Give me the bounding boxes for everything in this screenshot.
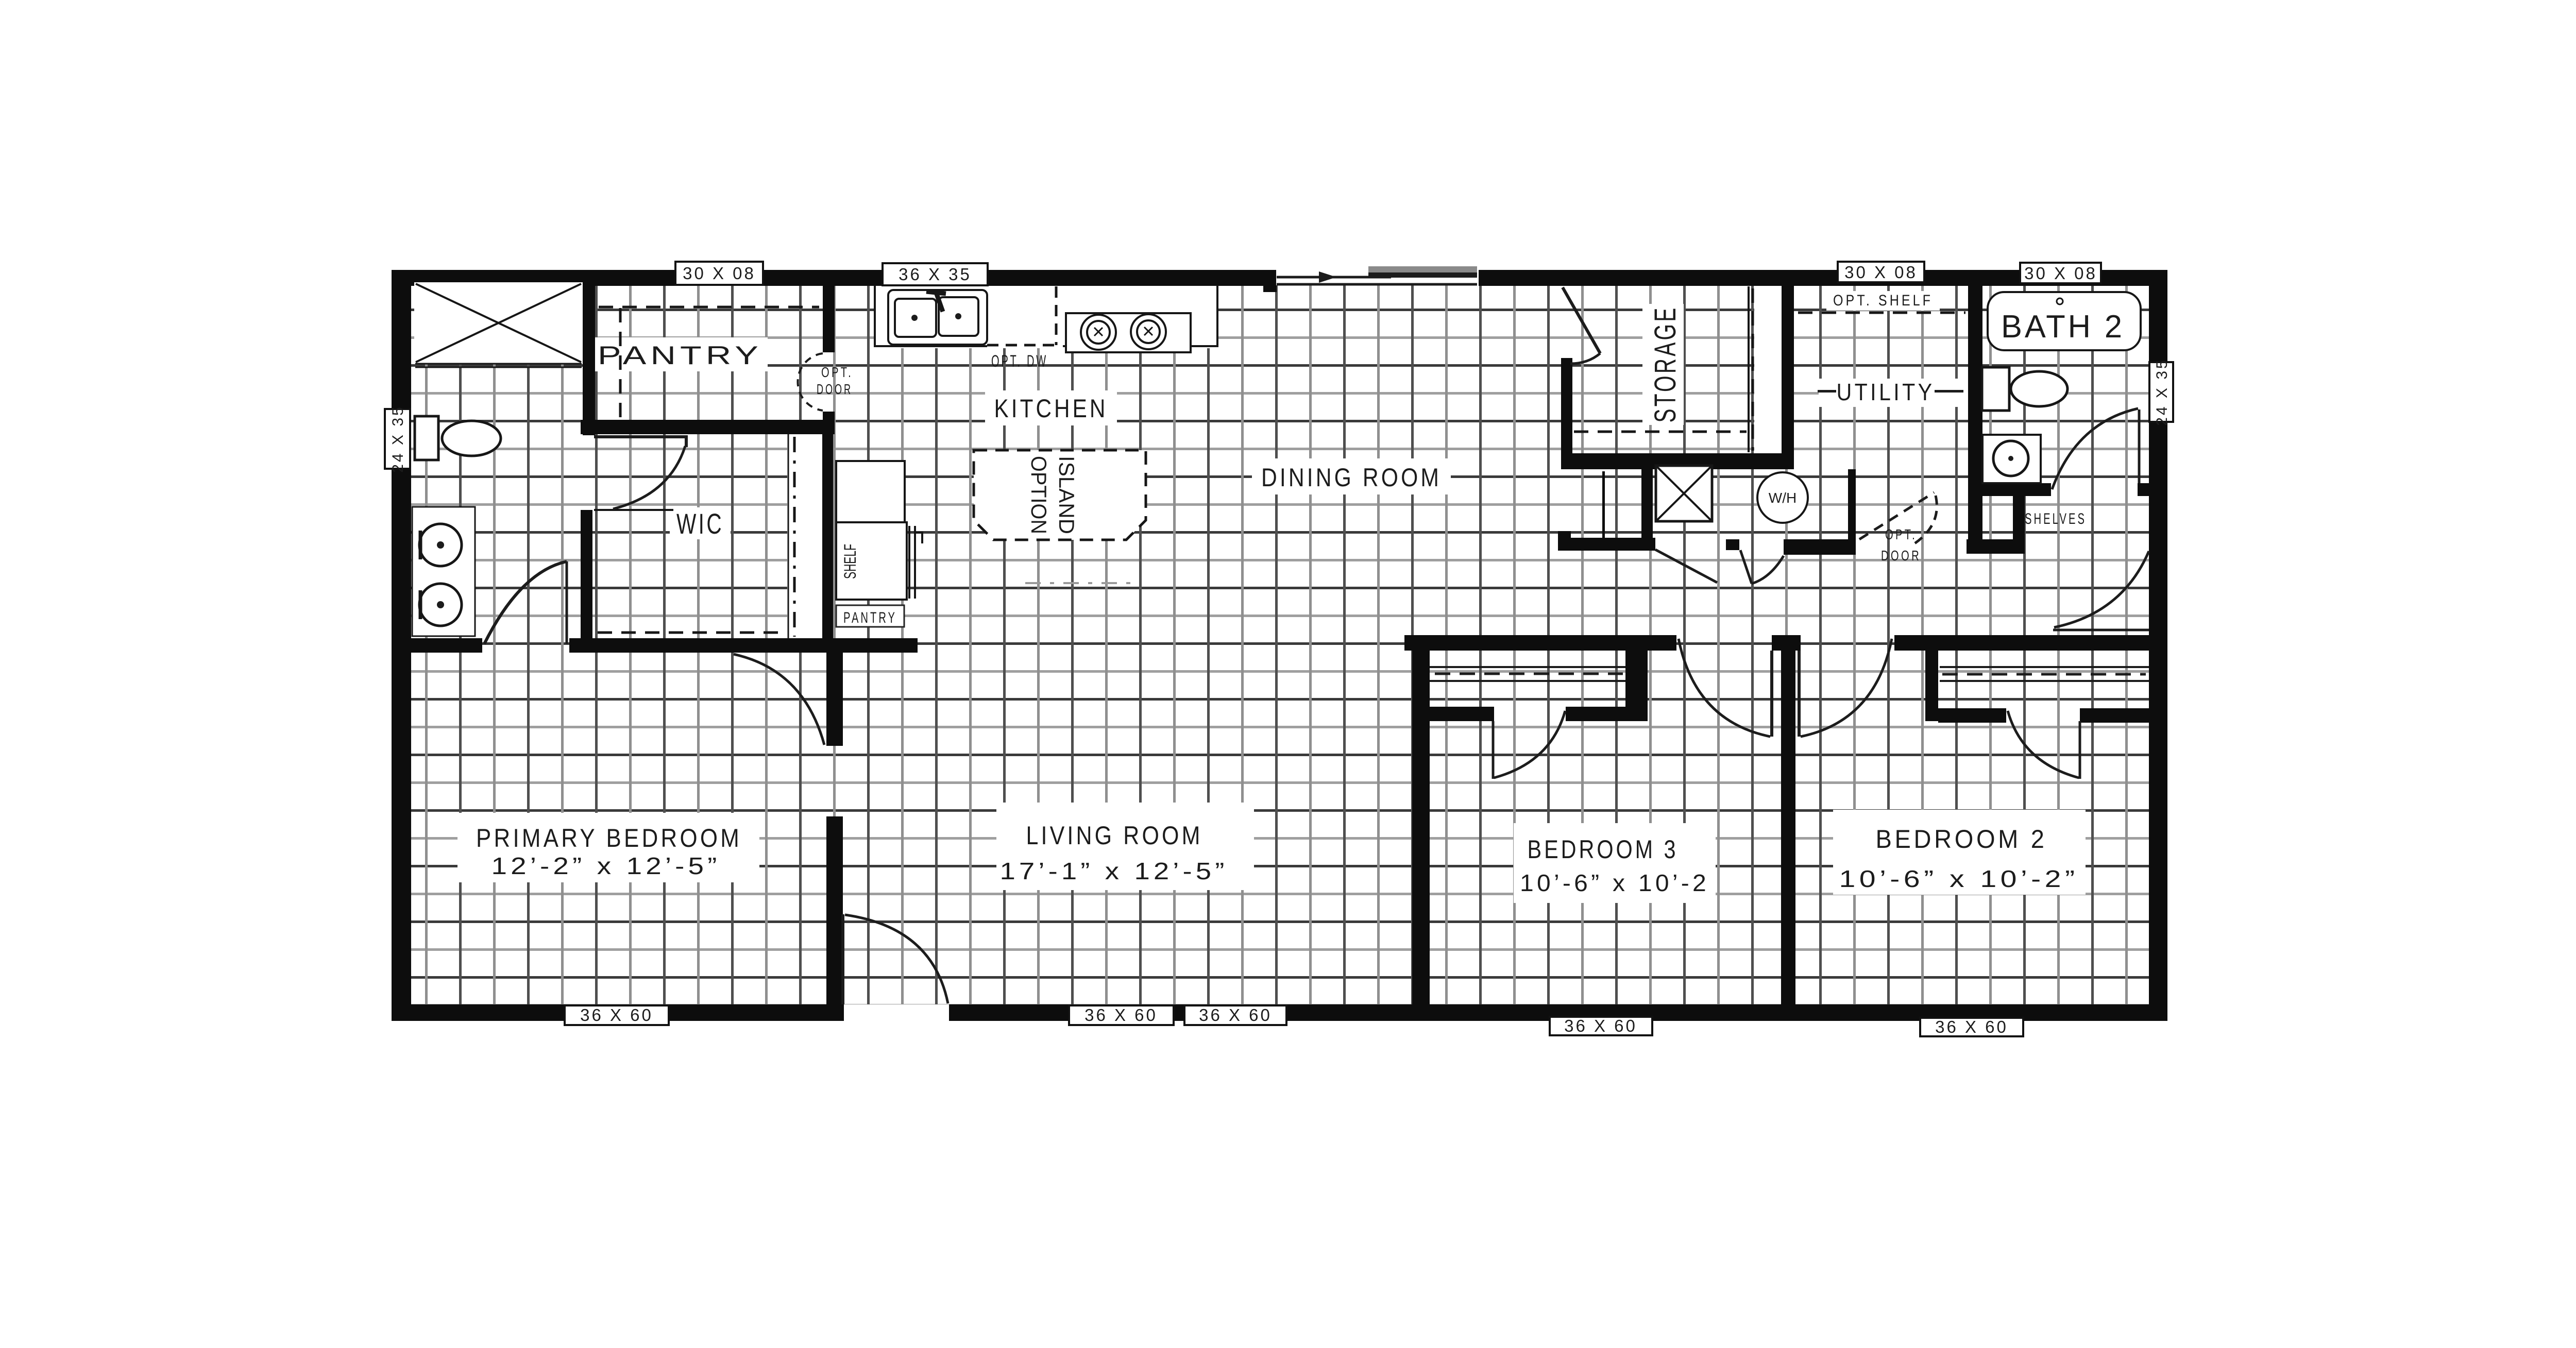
svg-text:PANTRY: PANTRY xyxy=(843,609,897,626)
svg-text:17’-1” x 12’-5”: 17’-1” x 12’-5” xyxy=(1000,858,1228,884)
svg-text:BEDROOM 2: BEDROOM 2 xyxy=(1876,825,2047,854)
svg-text:DINING ROOM: DINING ROOM xyxy=(1261,463,1442,492)
svg-text:OPT.: OPT. xyxy=(821,364,853,380)
svg-text:OPT. SHELF: OPT. SHELF xyxy=(1833,292,1933,309)
svg-text:30 X 08: 30 X 08 xyxy=(2024,264,2097,283)
svg-text:ISLAND: ISLAND xyxy=(1055,456,1079,534)
svg-text:OPTION: OPTION xyxy=(1027,456,1051,534)
svg-text:SHELF: SHELF xyxy=(841,544,859,579)
svg-text:24 X 35: 24 X 35 xyxy=(389,405,406,472)
svg-text:OPT.: OPT. xyxy=(1885,526,1917,542)
svg-text:DOOR: DOOR xyxy=(817,381,853,397)
svg-text:KITCHEN: KITCHEN xyxy=(994,394,1108,423)
svg-text:36 X 35: 36 X 35 xyxy=(899,265,972,284)
svg-text:SHELVES: SHELVES xyxy=(2025,510,2087,527)
svg-text:DOOR: DOOR xyxy=(1881,548,1921,564)
svg-text:10’-6” x 10’-2: 10’-6” x 10’-2 xyxy=(1520,869,1709,896)
svg-text:12’-2” x 12’-5”: 12’-2” x 12’-5” xyxy=(492,852,721,879)
svg-text:PRIMARY BEDROOM: PRIMARY BEDROOM xyxy=(476,824,742,852)
svg-text:24 X 35: 24 X 35 xyxy=(2154,358,2171,425)
svg-text:WIC: WIC xyxy=(676,507,724,540)
svg-text:10’-6” x 10’-2”: 10’-6” x 10’-2” xyxy=(1839,865,2079,892)
svg-text:30 X 08: 30 X 08 xyxy=(1844,263,1918,282)
svg-text:OPT. DW: OPT. DW xyxy=(991,352,1048,370)
svg-text:UTILITY: UTILITY xyxy=(1837,379,1935,405)
svg-text:PANTRY: PANTRY xyxy=(598,341,762,370)
svg-text:36 X 60: 36 X 60 xyxy=(1564,1016,1637,1035)
svg-text:36 X 60: 36 X 60 xyxy=(580,1005,653,1025)
svg-text:LIVING ROOM: LIVING ROOM xyxy=(1026,821,1203,850)
svg-text:36 X 60: 36 X 60 xyxy=(1935,1017,2008,1036)
svg-text:STORAGE: STORAGE xyxy=(1649,306,1682,423)
svg-text:W/H: W/H xyxy=(1769,490,1797,506)
svg-text:36 X 60: 36 X 60 xyxy=(1084,1005,1158,1025)
svg-text:30 X 08: 30 X 08 xyxy=(683,264,756,283)
svg-text:36 X 60: 36 X 60 xyxy=(1199,1005,1272,1025)
svg-text:BATH 2: BATH 2 xyxy=(2001,309,2125,345)
svg-text:BEDROOM 3: BEDROOM 3 xyxy=(1528,835,1679,864)
